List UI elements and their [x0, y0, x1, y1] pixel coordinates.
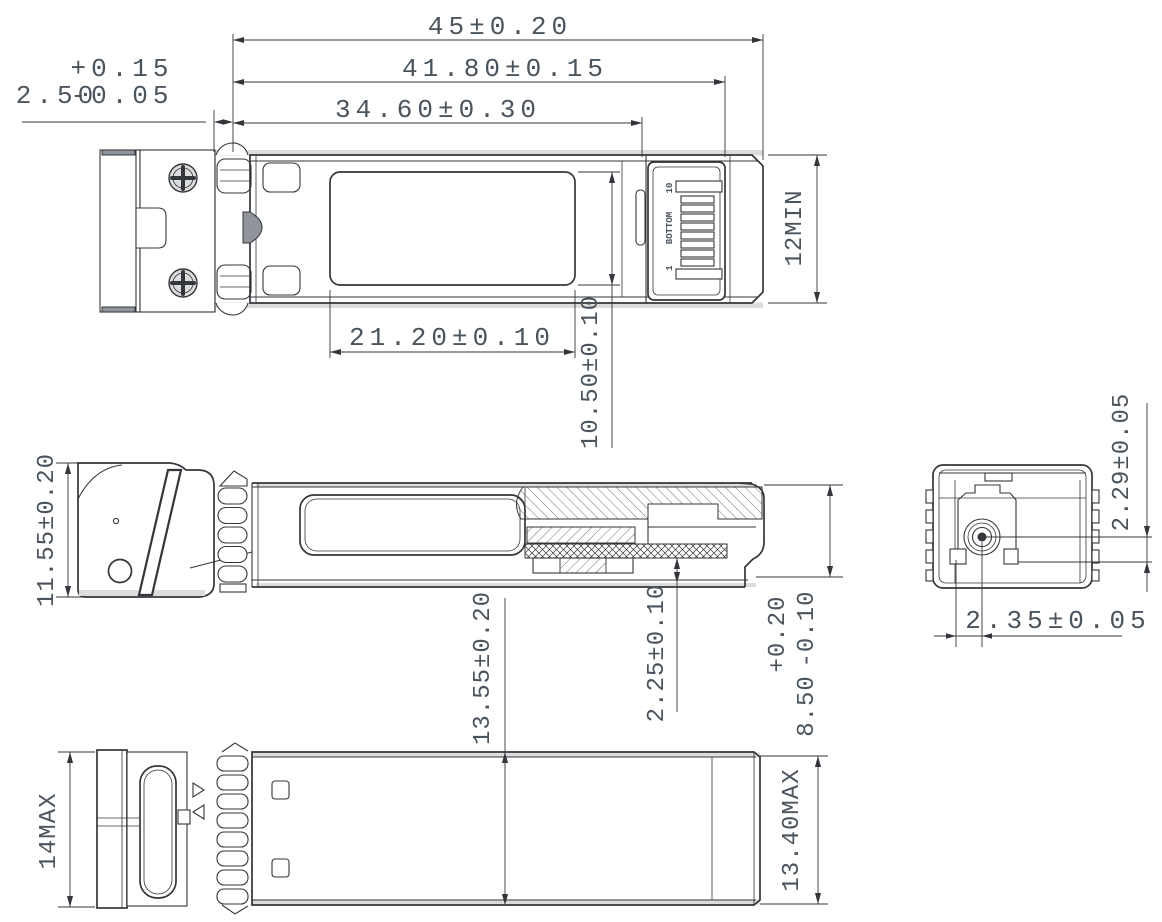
- dim-rear-height-tol-lower: -0.10: [794, 590, 821, 667]
- bail-pivot: [109, 560, 132, 583]
- sfp-transceiver-drawing: 10 BOTTOM 1 45±0.20 41.80±0.15 34.60±0.3…: [0, 0, 1162, 922]
- connector-pad: [681, 232, 714, 239]
- dim-front-offset-tol-upper: +0.15: [70, 54, 173, 84]
- dim-latch-length: 41.80±0.15: [402, 54, 608, 84]
- latch-hook-bottom: [217, 265, 251, 299]
- latch-hook-top: [217, 159, 251, 193]
- side-label-recess: [300, 495, 525, 555]
- connector-pad: [676, 269, 722, 279]
- latch-bump-top: [216, 143, 248, 155]
- connector-pad: [676, 181, 722, 192]
- screw-icon: [169, 269, 197, 297]
- bottom-view: 14MAX 13.40MAX: [36, 743, 828, 914]
- dim-card-edge: 12MIN: [782, 189, 809, 266]
- section-hatch-mid: [527, 527, 635, 543]
- side-view: 11.55±0.20 13.55±0.20 2.25±0.10 +0.20 -0…: [34, 453, 843, 752]
- latch-triangle-icon: [243, 212, 262, 243]
- arrow-left-icon: [193, 805, 204, 819]
- connector-face-label: BOTTOM: [665, 212, 675, 244]
- connector-pad: [681, 250, 714, 257]
- section-hatch-top: [516, 487, 762, 519]
- connector-pad: [681, 241, 714, 248]
- latch-catch: [178, 810, 190, 824]
- connector-pad: [681, 223, 714, 230]
- end-view: 2.29±0.05 2.35±0.05: [926, 393, 1152, 647]
- end-body: [933, 465, 1092, 588]
- bottom-bail: [97, 750, 204, 908]
- section-hatch-low: [560, 558, 606, 573]
- body-hole: [272, 781, 289, 799]
- connector-slot: [636, 190, 645, 245]
- side-body: [252, 483, 764, 587]
- edge-connector: 10 BOTTOM 1: [648, 162, 725, 300]
- dim-rear-height-tol-upper: +0.20: [765, 595, 792, 672]
- connector-pad: [681, 259, 714, 266]
- dim-pcb-offset: 2.25±0.10: [644, 584, 671, 723]
- emi-fingers-side: [218, 471, 247, 592]
- pad-number-last: 10: [665, 183, 675, 194]
- nose-notch: [136, 208, 166, 248]
- nose-block: [100, 150, 140, 312]
- dim-housing-length: 34.60±0.30: [335, 95, 541, 125]
- arrow-right-icon: [193, 783, 204, 797]
- dim-rear-height: 8.50: [794, 675, 821, 737]
- mechanical-drawing-sheet: 10 BOTTOM 1 45±0.20 41.80±0.15 34.60±0.3…: [0, 0, 1162, 922]
- pcb-section: [525, 544, 727, 558]
- connector-pad: [681, 205, 714, 212]
- dim-label-area-width: 10.50±0.10: [578, 295, 605, 449]
- dim-front-max: 14MAX: [36, 792, 63, 869]
- end-top-tab: [985, 473, 1012, 481]
- nose-edge-bottom: [102, 307, 135, 312]
- body-hole: [272, 859, 289, 877]
- connector-cavity: [648, 519, 756, 544]
- body-tab-top: [263, 163, 300, 192]
- dim-fiber-axis-height: 2.29±0.05: [1109, 393, 1136, 532]
- nose-edge-top: [102, 150, 135, 155]
- latch-bump-bottom: [216, 303, 248, 315]
- body-tab-bottom: [263, 266, 300, 295]
- top-view: 10 BOTTOM 1 45±0.20 41.80±0.15 34.60±0.3…: [16, 12, 827, 449]
- dim-front-offset-tol-lower: -0.05: [70, 81, 173, 111]
- bottom-body: [252, 752, 760, 905]
- dim-label-area-length: 21.20±0.10: [349, 323, 555, 353]
- connector-pad: [681, 214, 714, 221]
- pull-tab-slot: [140, 766, 176, 898]
- pad-number-first: 1: [665, 265, 675, 271]
- dim-front-height: 11.55±0.20: [34, 453, 61, 607]
- dim-fiber-axis-offset: 2.35±0.05: [965, 606, 1150, 636]
- connector-pad: [681, 196, 714, 203]
- label-recess: [330, 172, 575, 285]
- emi-fingers-bottom: [217, 743, 248, 914]
- dim-overall-length: 45±0.20: [428, 12, 572, 42]
- dim-rear-max: 13.40MAX: [779, 768, 806, 891]
- screw-icon: [169, 164, 197, 192]
- dim-module-width: 13.55±0.20: [470, 591, 497, 745]
